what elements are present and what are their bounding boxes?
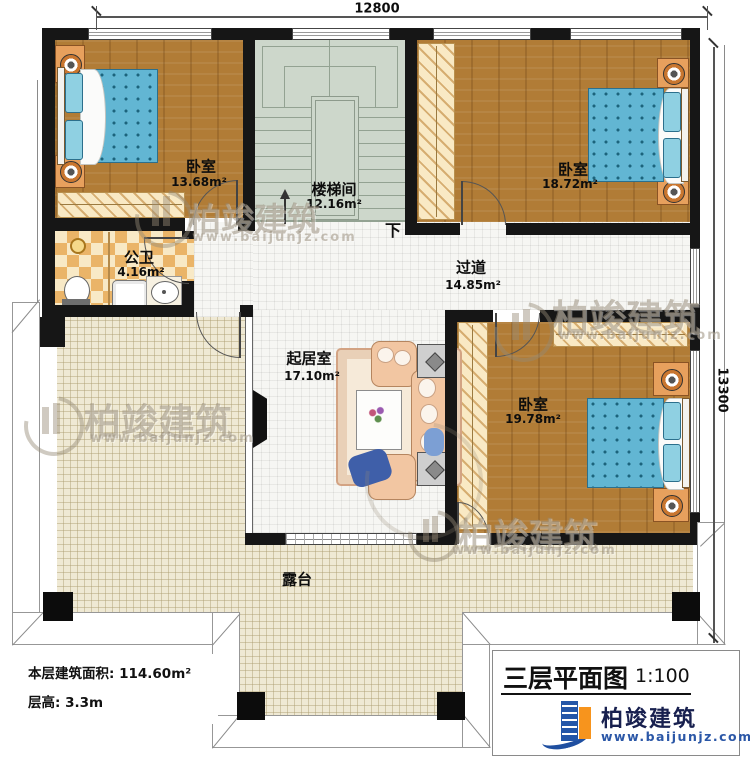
watermark-url: www.baijunjz.com xyxy=(90,431,255,446)
room-area-living: 17.10m² xyxy=(284,369,340,383)
door-leaf xyxy=(239,312,241,358)
wardrobe-rail xyxy=(436,46,437,217)
room-area-bedroom-tr: 18.72m² xyxy=(542,177,598,191)
eave-line xyxy=(37,80,38,302)
floor-height-label: 层高: xyxy=(28,695,60,711)
wall-segment xyxy=(405,28,417,235)
stairs-down-label: 下 xyxy=(385,217,401,241)
room-label-living: 起居室 xyxy=(286,348,331,369)
floor-area-value: 114.60m² xyxy=(119,666,191,682)
sliding-window xyxy=(285,533,417,545)
wall-segment xyxy=(506,223,690,235)
room-label-hallway: 过道 xyxy=(456,257,486,278)
ceiling-lamp-icon xyxy=(70,238,86,254)
bed-pillow xyxy=(65,73,83,113)
sofa-cushion xyxy=(418,378,436,398)
bed-headboard xyxy=(57,67,65,165)
watermark-logo-icon xyxy=(163,196,170,226)
watermark-url: www.baijunjz.com xyxy=(558,328,723,343)
room-label-bedroom-tl: 卧室 xyxy=(186,156,216,177)
brand-website: www.baijunjz.com xyxy=(601,729,750,744)
brand-logo-building-icon xyxy=(579,707,591,739)
watermark-logo-icon xyxy=(512,313,519,340)
sofa-cushion xyxy=(377,347,394,363)
drawing-scale: 1:100 xyxy=(635,665,690,687)
room-area-bathroom: 4.16m² xyxy=(117,265,164,279)
dimension-line-right xyxy=(713,47,715,643)
bed-headboard xyxy=(681,88,689,182)
lamp-icon xyxy=(663,63,685,85)
sink-drain xyxy=(162,290,166,294)
window xyxy=(433,28,531,40)
bed-pillow xyxy=(663,444,681,482)
watermark-logo-icon xyxy=(42,407,49,434)
title-block: 三层平面图 1:100 柏竣建筑 www.baijunjz.com xyxy=(492,650,740,756)
dimension-line-top xyxy=(96,16,708,18)
window xyxy=(88,28,212,40)
railing-band xyxy=(697,522,725,645)
floor-area-label: 本层建筑面积: xyxy=(28,666,114,682)
terrace-pillar xyxy=(237,692,265,720)
terrace-pillar xyxy=(43,592,73,621)
dimension-ext xyxy=(96,6,97,30)
title-rule xyxy=(501,693,691,695)
window xyxy=(690,350,700,513)
bed-pillow xyxy=(663,402,681,440)
watermark-logo-icon xyxy=(523,309,530,340)
wall-segment xyxy=(245,533,285,545)
window xyxy=(570,28,682,40)
eave-line xyxy=(724,45,725,523)
drawing-title: 三层平面图 xyxy=(503,659,628,695)
room-area-hallway: 14.85m² xyxy=(445,278,501,292)
wall-segment xyxy=(445,310,493,322)
lamp-icon xyxy=(663,181,685,203)
terrace-pillar xyxy=(672,592,700,621)
room-area-bedroom-tl: 13.68m² xyxy=(171,175,227,189)
railing-band xyxy=(12,302,40,645)
window xyxy=(292,28,390,40)
room-label-terrace: 露台 xyxy=(282,569,312,590)
dimension-top-label: 12800 xyxy=(354,2,399,17)
brand-logo-building-icon xyxy=(561,701,578,741)
watermark-url: www.baijunjz.com xyxy=(452,543,617,558)
floor-height-row: 层高: 3.3m xyxy=(28,691,218,711)
bathroom-partition xyxy=(108,232,110,308)
floor-plan: 12800 13300 卧室 13.68m² 楼梯间 12.16m² 卧室 18… xyxy=(0,0,750,762)
stair-divider-line xyxy=(329,40,330,96)
tv xyxy=(253,390,267,448)
lamp-icon xyxy=(661,495,683,517)
floor-area-row: 本层建筑面积: 114.60m² xyxy=(28,662,218,682)
watermark-logo-icon xyxy=(152,200,159,226)
terrace-pillar xyxy=(437,692,465,720)
wall-segment xyxy=(42,28,55,317)
bed-pillow xyxy=(663,138,681,178)
door-leaf xyxy=(461,181,463,225)
lamp-icon xyxy=(661,369,683,391)
room-area-bedroom-br: 19.78m² xyxy=(505,412,561,426)
sofa-cushion xyxy=(394,350,411,366)
bed-headboard xyxy=(682,398,690,488)
watermark-url: www.baijunjz.com xyxy=(192,230,357,245)
info-panel: 本层建筑面积: 114.60m² 层高: 3.3m xyxy=(28,654,218,724)
watermark-logo-icon xyxy=(53,403,60,434)
bed-bedroom-tr xyxy=(588,88,664,182)
bed-bedroom-br xyxy=(587,398,664,488)
wall-segment xyxy=(417,223,460,235)
floor-height-value: 3.3m xyxy=(65,695,103,711)
wall-segment xyxy=(42,305,194,317)
glass-partition xyxy=(245,317,253,533)
dimension-ext xyxy=(707,6,708,30)
bed-pillow xyxy=(663,92,681,132)
bed-pillow xyxy=(65,120,83,160)
bed-duvet xyxy=(80,69,106,165)
wall-segment xyxy=(240,305,253,317)
dimension-right-label: 13300 xyxy=(715,367,730,412)
flower-decor xyxy=(366,404,388,426)
